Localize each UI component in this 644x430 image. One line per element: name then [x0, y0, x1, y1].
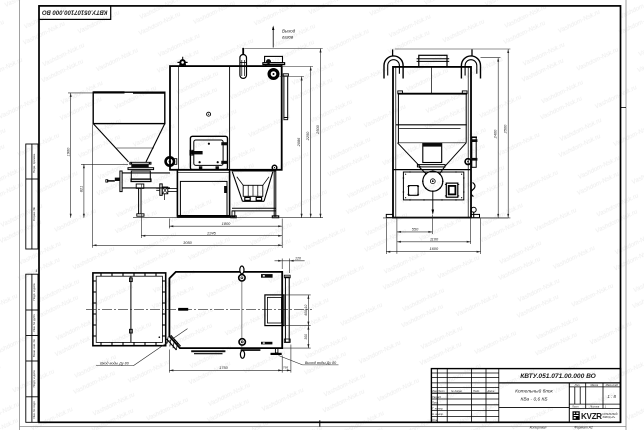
svg-text:1800: 1800 — [222, 221, 231, 226]
svg-text:2400: 2400 — [493, 129, 498, 139]
svg-text:Котельный блок: Котельный блок — [515, 388, 553, 395]
svg-text:Лит.: Лит. — [573, 383, 580, 387]
svg-text:2250: 2250 — [305, 131, 310, 141]
svg-text:2086: 2086 — [296, 137, 301, 147]
svg-text:Выход: Выход — [282, 29, 296, 34]
svg-text:1960: 1960 — [65, 147, 70, 156]
svg-text:1100: 1100 — [430, 236, 439, 241]
svg-text:Формат А2: Формат А2 — [574, 426, 593, 430]
svg-text:1750: 1750 — [219, 365, 228, 370]
svg-text:Перв. примен.: Перв. примен. — [32, 153, 36, 173]
svg-text:Дата: Дата — [487, 389, 495, 393]
svg-text:Лист: Лист — [437, 389, 446, 393]
svg-text:№ докум.: № докум. — [451, 389, 463, 393]
svg-text:Выход воды Ду 80: Выход воды Ду 80 — [305, 361, 337, 365]
svg-text:400±10: 400±10 — [304, 305, 308, 316]
svg-text:2245: 2245 — [206, 230, 216, 235]
svg-text:газов: газов — [282, 34, 294, 39]
svg-text:Изм: Изм — [432, 389, 437, 393]
svg-text:1600: 1600 — [429, 246, 438, 251]
svg-text:795: 795 — [283, 366, 288, 370]
svg-text:Копировал: Копировал — [530, 426, 547, 430]
svg-text:Лист: Лист — [571, 405, 580, 409]
svg-text:Листов: Листов — [589, 405, 600, 409]
svg-text:Справ. №: Справ. № — [32, 206, 36, 220]
svg-text:КВТУ.051.071.00.000 ВО: КВТУ.051.071.00.000 ВО — [520, 373, 596, 380]
svg-text:821: 821 — [79, 186, 84, 193]
svg-text:1 : 8: 1 : 8 — [607, 394, 616, 399]
svg-text:550: 550 — [412, 226, 419, 231]
svg-text:Утв.: Утв. — [432, 418, 438, 422]
svg-text:КВа - 0,6 КБ: КВа - 0,6 КБ — [521, 397, 548, 403]
svg-text:2500: 2500 — [315, 124, 320, 134]
svg-text:Подп. и дата: Подп. и дата — [32, 283, 36, 300]
svg-text:Т. контр.: Т. контр. — [432, 406, 443, 410]
svg-text:Н. контр.: Н. контр. — [432, 412, 444, 416]
svg-text:Подп. и дата: Подп. и дата — [32, 370, 36, 387]
svg-text:Вход воды Ду 80: Вход воды Ду 80 — [100, 362, 129, 366]
svg-text:Взам. инв. №: Взам. инв. № — [32, 339, 36, 357]
svg-text:3050: 3050 — [183, 240, 192, 245]
svg-text:Инв. № подл.: Инв. № подл. — [32, 400, 36, 418]
svg-text:Пров.: Пров. — [432, 401, 439, 405]
svg-text:Подп.: Подп. — [473, 389, 480, 393]
svg-text:Разраб.: Разраб. — [432, 395, 442, 399]
svg-text:Масса: Масса — [590, 383, 598, 387]
svg-text:Масштаб: Масштаб — [606, 383, 619, 387]
svg-text:КВТУ.05107100.000 ВО: КВТУ.05107100.000 ВО — [42, 9, 108, 15]
svg-text:4: 4 — [36, 269, 38, 273]
svg-text:ЗАВОД «Р»: ЗАВОД «Р» — [603, 416, 616, 419]
svg-text:300: 300 — [304, 334, 308, 340]
svg-text:120: 120 — [295, 256, 301, 260]
svg-text:KVZR: KVZR — [581, 412, 602, 421]
svg-text:Инв. № дубл.: Инв. № дубл. — [32, 314, 36, 332]
svg-text:2500: 2500 — [503, 124, 508, 134]
